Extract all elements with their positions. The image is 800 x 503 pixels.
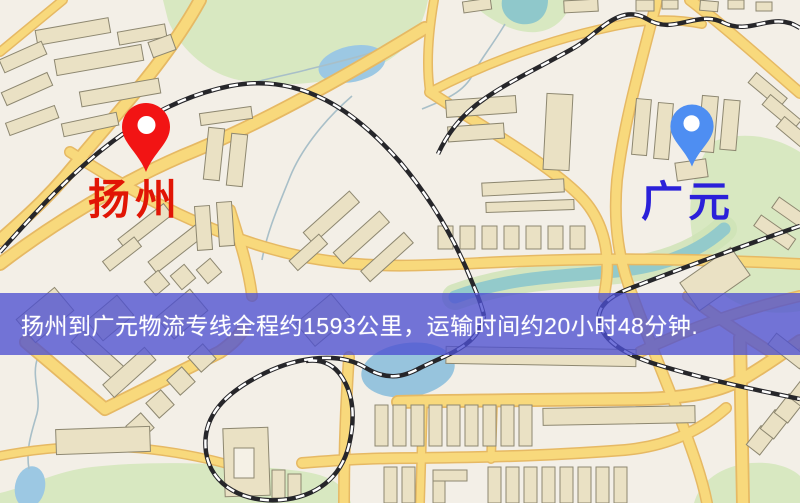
map-background [0, 0, 800, 503]
route-info-banner: 扬州到广元物流专线全程约1593公里，运输时间约20小时48分钟. [0, 293, 800, 355]
destination-city-label: 广元 [641, 181, 735, 223]
route-info-text: 扬州到广元物流专线全程约1593公里，运输时间约20小时48分钟. [0, 307, 698, 341]
map-screenshot: 扬州 广元 扬州到广元物流专线全程约1593公里，运输时间约20小时48分钟. [0, 0, 800, 503]
origin-city-label: 扬州 [88, 179, 182, 221]
